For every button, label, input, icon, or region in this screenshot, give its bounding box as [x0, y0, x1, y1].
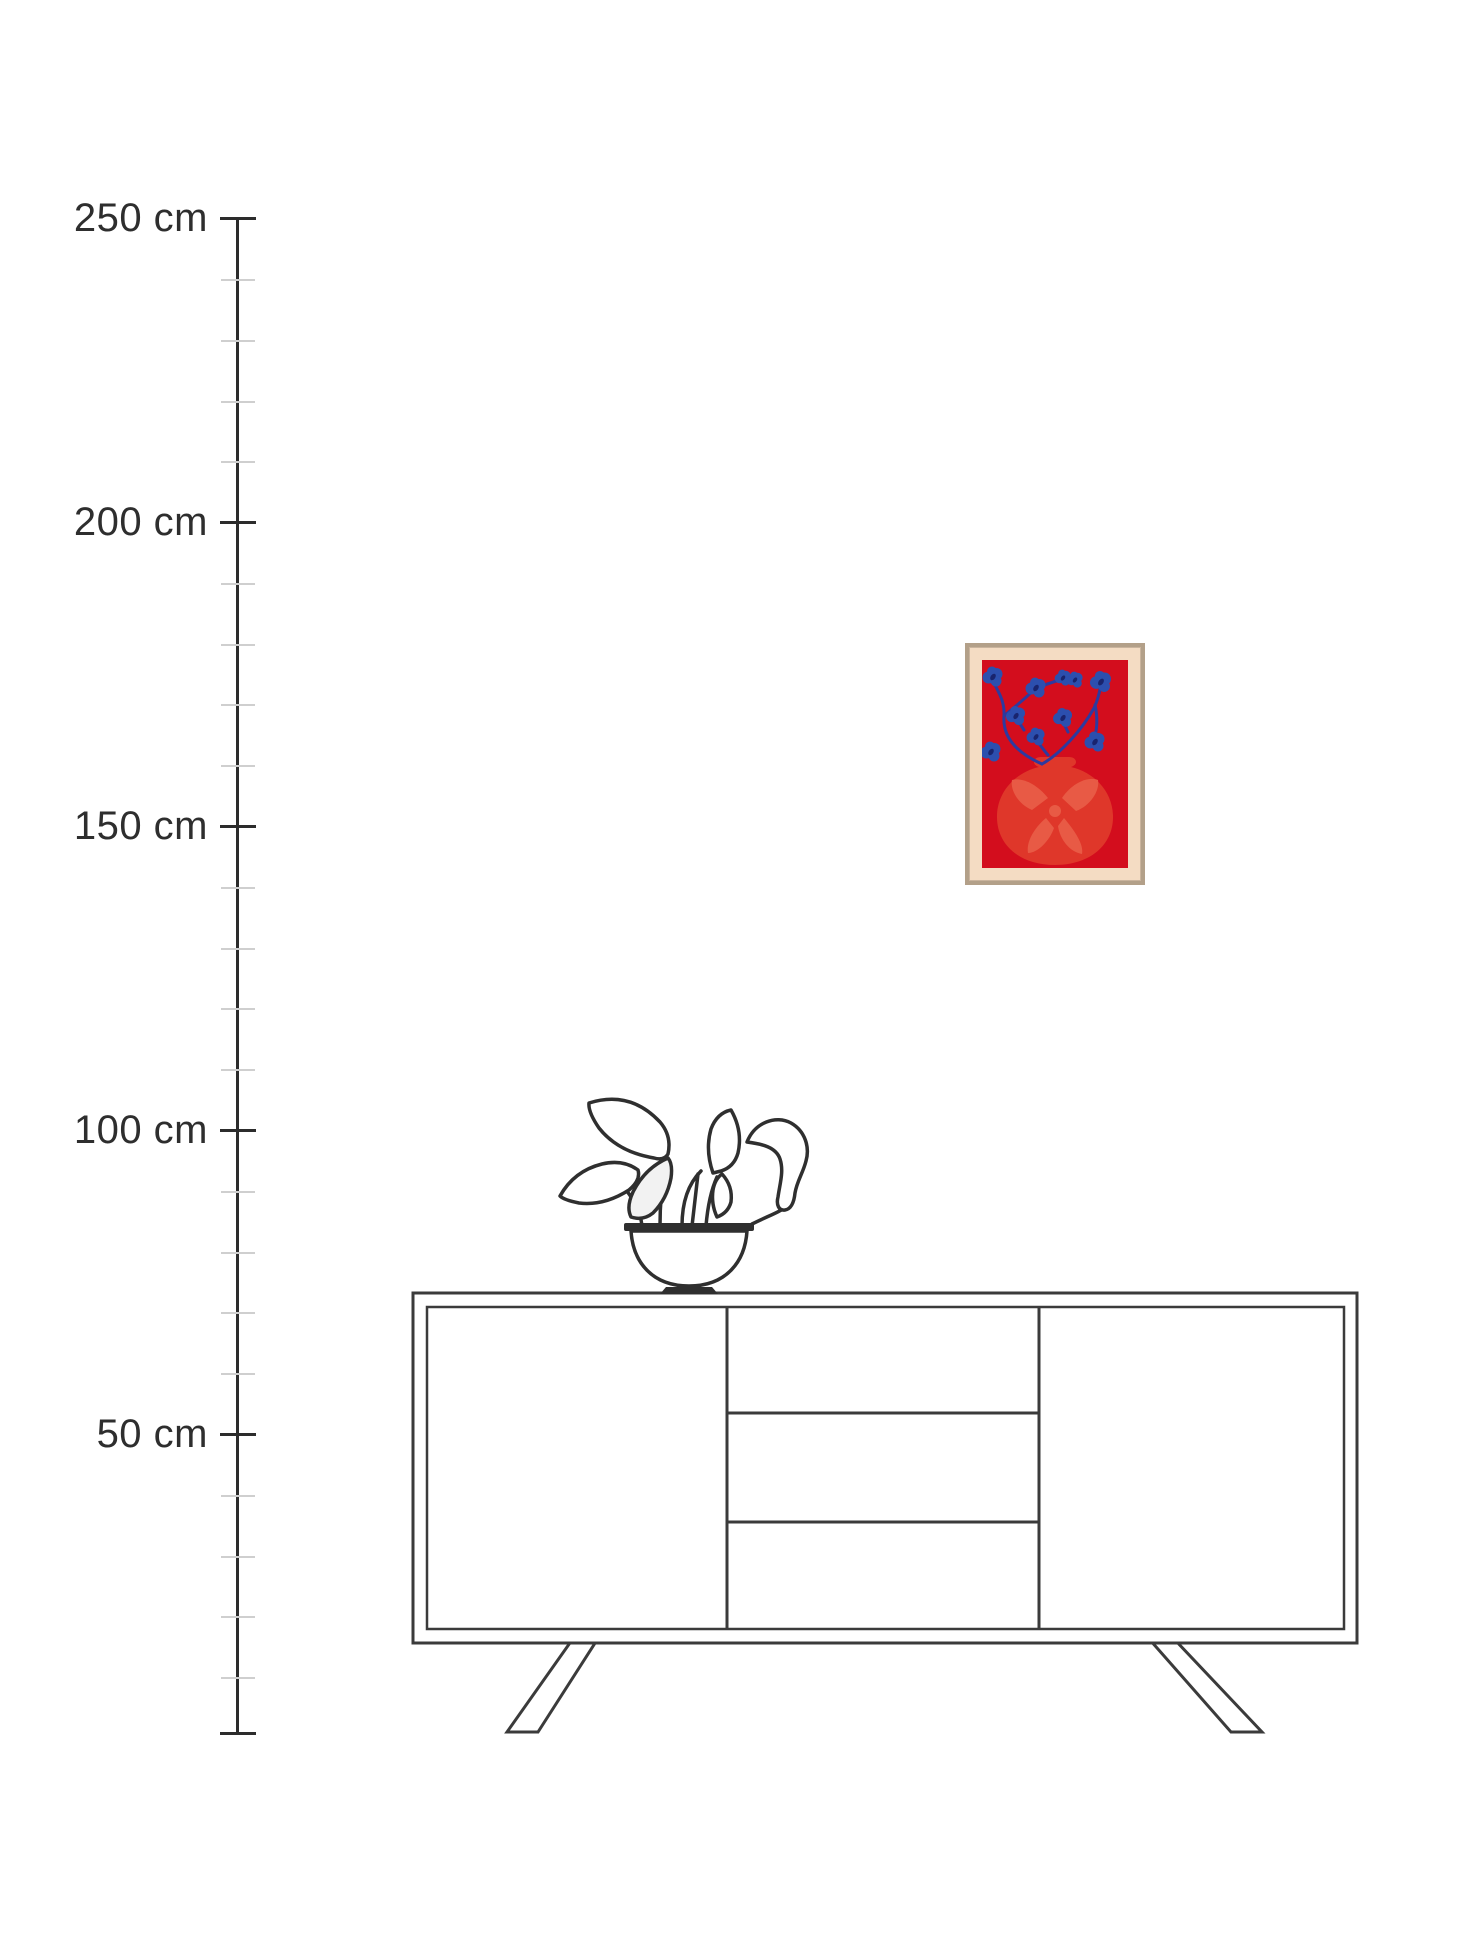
plant-pot-rim — [624, 1223, 754, 1231]
plant-pot-base — [660, 1287, 718, 1294]
plant-pot-bowl — [631, 1231, 747, 1286]
sideboard-right-leg — [1150, 1640, 1262, 1732]
framed-poster — [965, 643, 1145, 885]
plant-leaf — [589, 1099, 669, 1159]
size-guide-scene: 250 cm 200 cm 150 cm 100 cm 50 cm — [0, 0, 1460, 1948]
sideboard-inner-panel — [427, 1307, 1344, 1629]
furniture-line-drawing — [0, 0, 1460, 1948]
potted-plant — [560, 1099, 807, 1294]
plant-leaf — [560, 1162, 639, 1203]
sideboard-left-leg — [507, 1640, 597, 1732]
plant-leaf — [708, 1110, 739, 1173]
poster-artwork — [982, 660, 1128, 868]
plant-leaf — [713, 1174, 732, 1217]
plant-leaf — [747, 1120, 807, 1210]
